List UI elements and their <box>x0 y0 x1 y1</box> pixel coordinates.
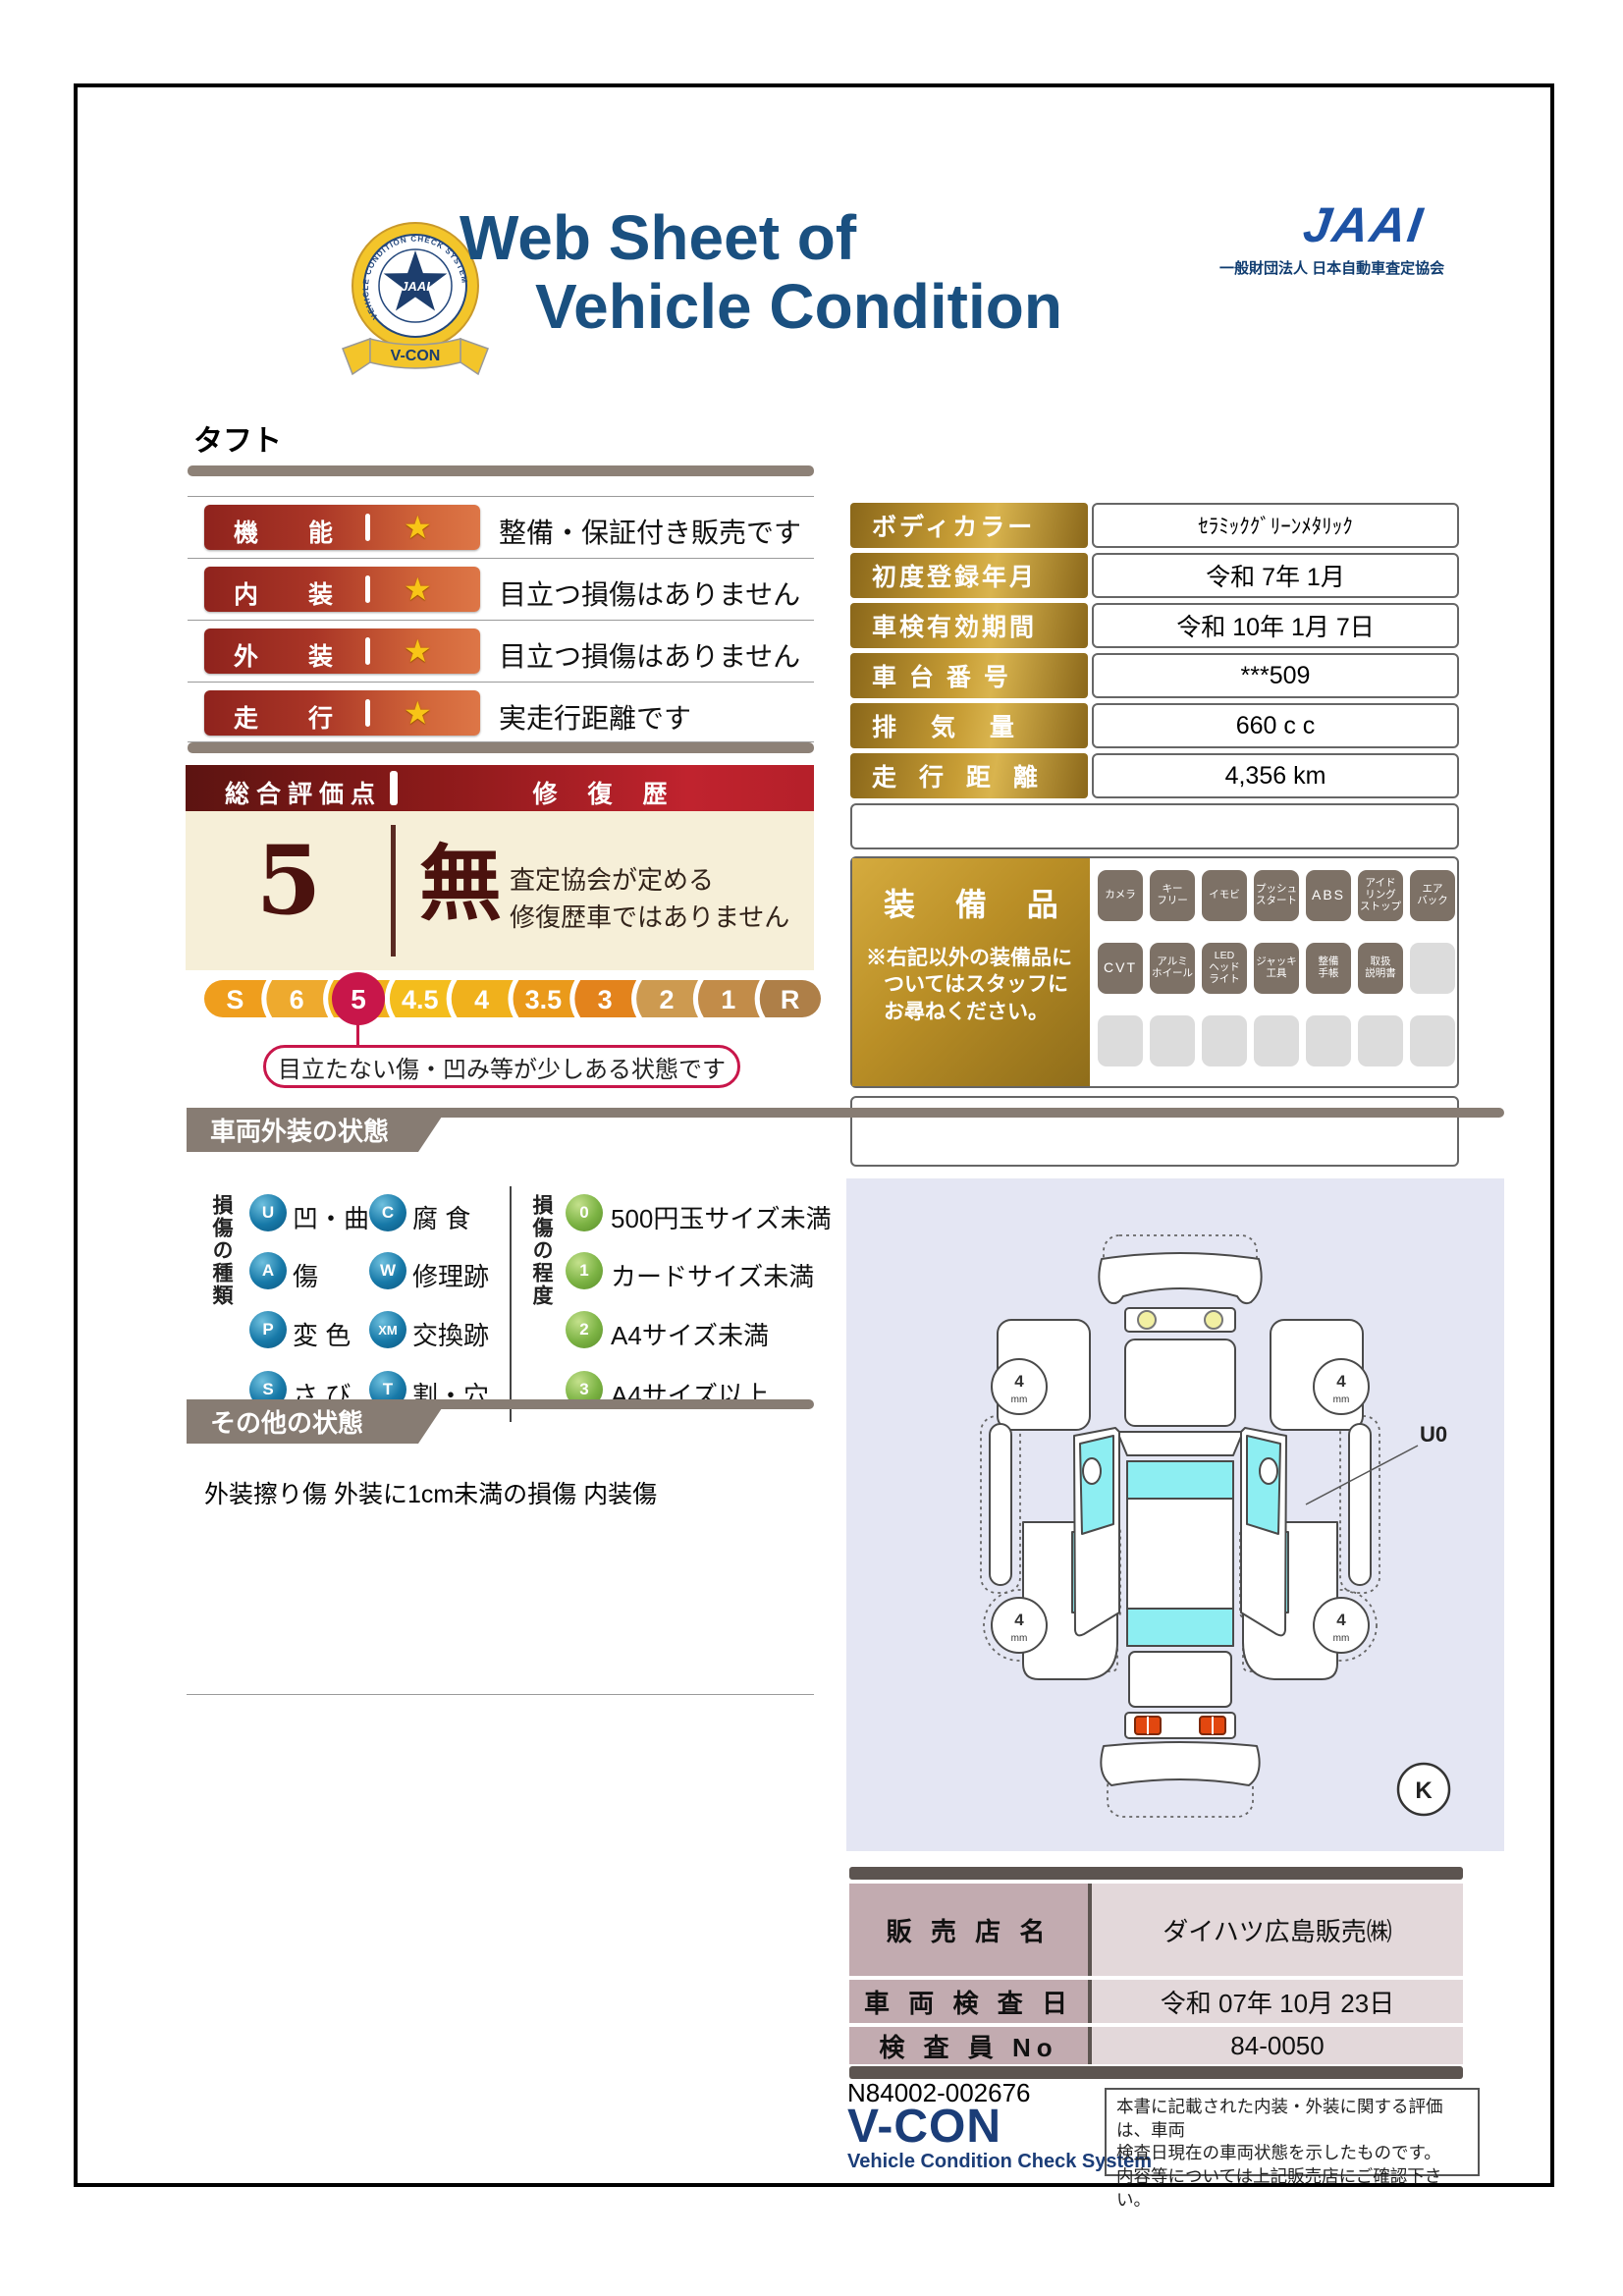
svg-text:mm: mm <box>1333 1394 1350 1405</box>
windshield <box>1117 1432 1243 1455</box>
right-mirror-icon <box>1260 1458 1277 1484</box>
jaai-logo: JAAI <box>1300 196 1428 253</box>
equipment-panel: 装 備 品 ※右記以外の装備品に ついてはスタッフに お尋ねください。 カメラ … <box>850 856 1459 1088</box>
rear-bumper <box>1101 1742 1259 1785</box>
score-callout: 目立たない傷・凹み等が少しある状態です <box>263 1045 740 1088</box>
front-bumper <box>1099 1253 1261 1303</box>
equipment-cvt: CVT <box>1098 943 1143 994</box>
rating-badge-mileage: 走 行 ★ <box>204 690 480 736</box>
equipment-camera: カメラ <box>1098 870 1143 921</box>
repair-note-line2: 修復歴車ではありません <box>510 898 789 934</box>
right-sill <box>1349 1424 1371 1585</box>
equipment-abs: ABS <box>1306 870 1351 921</box>
star-icon: ★ <box>404 632 432 670</box>
equipment-led-headlight: LEDヘッドライト <box>1202 943 1247 994</box>
spec-value-inspection-validity: 令和 10年 1月 7日 <box>1092 603 1459 648</box>
score-scale: S 6 4.5 4 3.5 3 2 1 R 5 <box>204 970 821 1029</box>
roof-rear-glass <box>1127 1609 1233 1646</box>
rating-desc-interior: 目立つ損傷はありません <box>499 574 800 613</box>
rating-badge-interior: 内 装 ★ <box>204 567 480 612</box>
dealer-name-row: 販 売 店 名 ダイハツ広島販売㈱ <box>849 1884 1463 1976</box>
star-icon: ★ <box>404 571 432 608</box>
equipment-idling-stop: アイドリングストップ <box>1358 870 1403 921</box>
vehicle-name: タフト <box>193 416 282 460</box>
equipment-empty-slot <box>1410 943 1455 994</box>
svg-text:1: 1 <box>721 985 735 1014</box>
score-header: 総合評価点 修 復 歴 <box>186 765 814 811</box>
equipment-empty-slot <box>1202 1015 1247 1066</box>
equipment-empty-slot <box>1358 1015 1403 1066</box>
star-icon: ★ <box>404 694 432 732</box>
svg-text:JAAI: JAAI <box>401 279 430 294</box>
svg-text:2: 2 <box>659 985 674 1014</box>
svg-text:mm: mm <box>1011 1633 1028 1644</box>
footer-disclaimer: 本書に記載された内装・外装に関する評価は、車両 検査日現在の車両状態を示したもの… <box>1105 2088 1480 2176</box>
headlight-left-icon <box>1138 1311 1156 1329</box>
equipment-label-panel: 装 備 品 ※右記以外の装備品に ついてはスタッフに お尋ねください。 <box>852 858 1090 1086</box>
headlight-right-icon <box>1205 1311 1222 1329</box>
score-body: 5 無 査定協会が定める 修復歴車ではありません <box>186 811 814 970</box>
svg-text:S: S <box>226 985 243 1014</box>
repair-note-line1: 査定協会が定める <box>510 860 714 897</box>
equipment-owners-manual: 取扱説明書 <box>1358 943 1403 994</box>
inspection-date-row: 車 両 検 査 日 令和 07年 10月 23日 <box>849 1980 1463 2023</box>
equipment-empty-slot <box>1098 1015 1143 1066</box>
left-sill <box>990 1424 1011 1585</box>
svg-text:4: 4 <box>474 985 489 1014</box>
svg-text:4: 4 <box>1014 1372 1024 1391</box>
divider-bar <box>188 465 814 476</box>
rating-desc-exterior: 目立つ損傷はありません <box>499 635 800 675</box>
score-header-right: 修 復 歴 <box>398 775 814 810</box>
car-damage-diagram: 4 mm 4 mm 4 mm 4 mm U0 K <box>846 1178 1504 1851</box>
equipment-empty-slot <box>1410 1015 1455 1066</box>
equipment-empty-slot <box>1254 1015 1299 1066</box>
left-front-window <box>1080 1436 1113 1534</box>
roof-front-glass <box>1127 1461 1233 1499</box>
spec-value-mileage: 4,356 km <box>1092 753 1459 798</box>
spec-value-displacement: 660 c c <box>1092 703 1459 748</box>
svg-text:6: 6 <box>290 985 304 1014</box>
repair-history-status: 無 <box>419 843 502 925</box>
equipment-empty-slot <box>1150 1015 1195 1066</box>
overall-score-value: 5 <box>225 825 352 936</box>
svg-text:4: 4 <box>1336 1611 1346 1629</box>
exterior-section-header: 車両外装の状態 <box>187 1108 448 1152</box>
spec-value-bodycolor: ｾﾗﾐｯｸｸﾞﾘｰﾝﾒﾀﾘｯｸ <box>1092 503 1459 548</box>
svg-text:5: 5 <box>351 984 366 1014</box>
sheet-title-line1: Web Sheet of <box>460 201 856 274</box>
inspector-no-row: 検 査 員 No 84-0050 <box>849 2027 1463 2064</box>
spec-value-chassis-number: ***509 <box>1092 653 1459 698</box>
left-mirror-icon <box>1083 1458 1101 1484</box>
svg-text:mm: mm <box>1333 1633 1350 1644</box>
star-icon: ★ <box>404 509 432 546</box>
sheet-title-line2: Vehicle Condition <box>535 270 1062 343</box>
vehicle-condition-sheet: VEHICLE CONDITION CHECK SYSTEM JAAI V-CO… <box>0 0 1623 2296</box>
vcon-logo: V-CON <box>847 2104 1001 2151</box>
hood <box>1125 1339 1235 1426</box>
svg-text:mm: mm <box>1011 1394 1028 1405</box>
rating-badge-function: 機 能 ★ <box>204 505 480 550</box>
svg-text:4: 4 <box>1336 1372 1346 1391</box>
rear-gate <box>1129 1652 1231 1707</box>
spec-value-first-registration: 令和 7年 1月 <box>1092 553 1459 598</box>
equipment-empty-slot <box>1306 1015 1351 1066</box>
other-section-header: その他の状態 <box>187 1399 448 1444</box>
svg-text:3.5: 3.5 <box>525 985 563 1014</box>
rating-desc-mileage: 実走行距離です <box>499 697 691 737</box>
svg-text:V-CON: V-CON <box>391 348 441 364</box>
inspector-no-value: 84-0050 <box>1092 2027 1463 2064</box>
score-header-left: 総合評価点 <box>225 775 382 810</box>
empty-notes-box <box>850 1096 1459 1167</box>
svg-text:K: K <box>1415 1777 1433 1804</box>
damage-code-label: U0 <box>1420 1422 1447 1447</box>
equipment-pushstart: プッシュスタート <box>1254 870 1299 921</box>
callout-connector <box>356 1023 359 1047</box>
equipment-jack-tools: ジャッキ工具 <box>1254 943 1299 994</box>
svg-text:3: 3 <box>598 985 613 1014</box>
equipment-alloy-wheels: アルミホイール <box>1150 943 1195 994</box>
equipment-maintenance-book: 整備手帳 <box>1306 943 1351 994</box>
jaai-organization-name: 一般財団法人 日本自動車査定協会 <box>1219 257 1444 278</box>
inspection-date-value: 令和 07年 10月 23日 <box>1092 1980 1463 2023</box>
equipment-immobilizer: イモビ <box>1202 870 1247 921</box>
equipment-keyfree: キーフリー <box>1150 870 1195 921</box>
equipment-airbag: エアバック <box>1410 870 1455 921</box>
svg-text:R: R <box>781 985 800 1014</box>
empty-spec-row <box>850 803 1459 849</box>
divider-bar <box>188 742 814 753</box>
rating-desc-function: 整備・保証付き販売です <box>499 512 801 551</box>
svg-text:4.5: 4.5 <box>402 985 439 1014</box>
right-front-window <box>1247 1436 1280 1534</box>
other-condition-note: 外装擦り傷 外装に1cm未満の損傷 内装傷 <box>204 1475 657 1510</box>
damage-type-label: 損傷の種類 <box>206 1194 236 1332</box>
damage-degree-label: 損傷の程度 <box>526 1194 556 1332</box>
dealer-name-value: ダイハツ広島販売㈱ <box>1092 1884 1463 1976</box>
rating-badge-exterior: 外 装 ★ <box>204 629 480 674</box>
svg-text:4: 4 <box>1014 1611 1024 1629</box>
